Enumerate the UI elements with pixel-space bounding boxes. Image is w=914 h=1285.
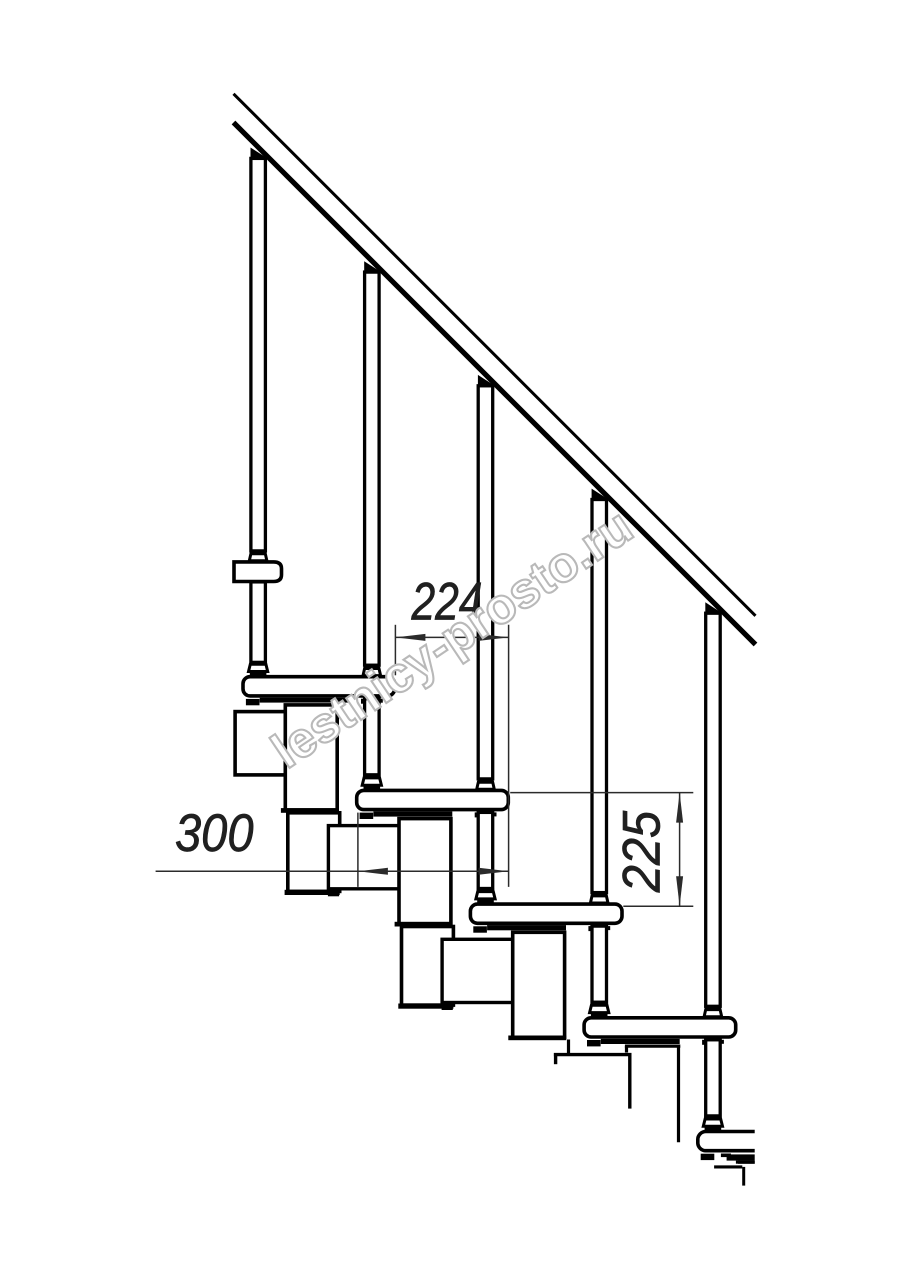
svg-text:300: 300 — [175, 804, 254, 863]
svg-text:225: 225 — [613, 810, 672, 893]
